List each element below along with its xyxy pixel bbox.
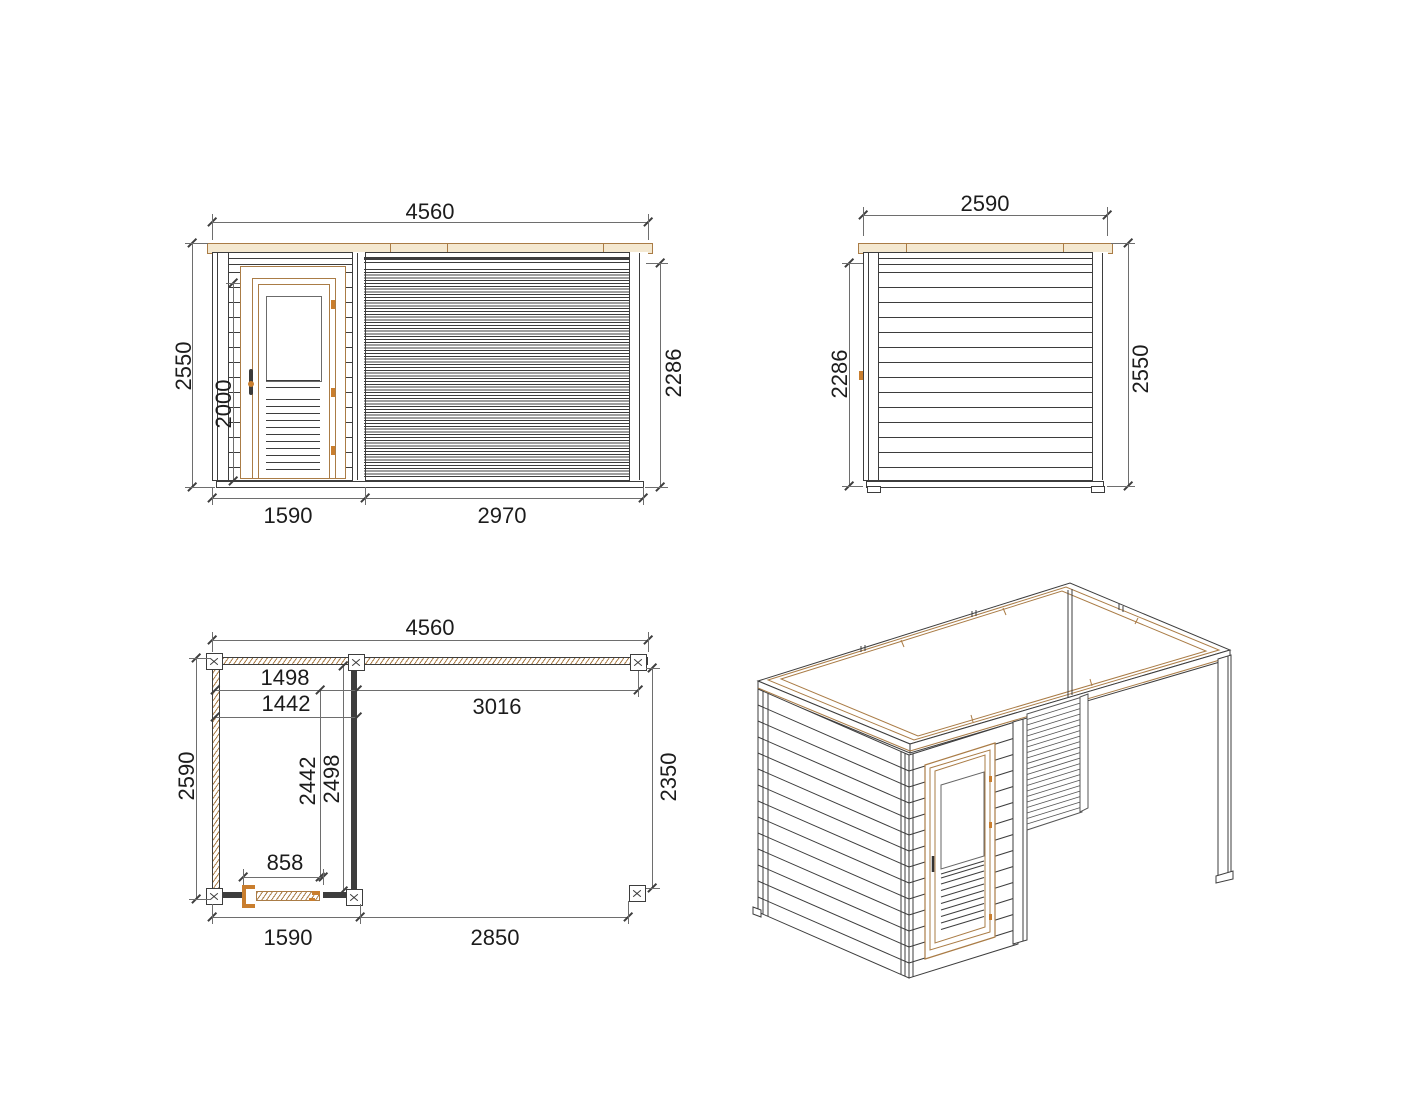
side-siding bbox=[878, 258, 1092, 479]
door-hinge bbox=[331, 300, 335, 309]
isometric-view bbox=[730, 555, 1260, 1005]
extension-line bbox=[842, 263, 863, 264]
door-latch bbox=[312, 891, 320, 895]
cabin-right-wall bbox=[351, 665, 357, 897]
post-back-right bbox=[630, 654, 647, 671]
extension-line bbox=[643, 487, 644, 505]
roof-joint bbox=[390, 244, 391, 252]
extension-line bbox=[648, 632, 649, 652]
dim-label-depth: 2590 bbox=[920, 191, 1050, 217]
dim-label-canopy-width: 2850 bbox=[430, 925, 560, 951]
extension-line bbox=[185, 487, 215, 488]
divider-line bbox=[357, 253, 358, 480]
extension-line bbox=[645, 487, 668, 488]
roof-joint bbox=[1063, 244, 1064, 252]
dim-label-door-opening: 858 bbox=[220, 850, 350, 876]
dimension-line bbox=[652, 668, 653, 888]
corner-board-line bbox=[868, 253, 869, 480]
dim-label-cabin-width: 1590 bbox=[223, 925, 353, 951]
dim-label-overall-width: 4560 bbox=[365, 615, 495, 641]
dim-label-canopy-span: 3016 bbox=[432, 694, 562, 720]
dimension-line bbox=[212, 498, 643, 499]
door-latch bbox=[309, 898, 315, 901]
door-hinge-bracket bbox=[242, 885, 255, 889]
extension-line bbox=[863, 207, 864, 236]
extension-line bbox=[185, 243, 208, 244]
foot-left bbox=[867, 486, 881, 493]
dim-label-louver-wall-width: 2970 bbox=[437, 503, 567, 529]
dim-label-cabin-inner-depth: 2442 bbox=[295, 716, 321, 846]
dimension-line bbox=[212, 917, 628, 918]
door-louvers bbox=[266, 393, 320, 471]
louver-top-line bbox=[364, 262, 629, 263]
extension-line bbox=[360, 904, 361, 924]
left-wall bbox=[212, 657, 220, 899]
dim-label-door-height: 2000 bbox=[211, 339, 237, 469]
corner-board-right bbox=[1092, 252, 1108, 481]
door-handle-knob bbox=[248, 381, 254, 387]
extension-line bbox=[646, 668, 660, 669]
door-hinge bbox=[331, 446, 335, 455]
extension-line bbox=[1107, 486, 1135, 487]
extension-line bbox=[365, 487, 366, 505]
extension-line bbox=[646, 263, 668, 264]
roof-joint bbox=[906, 244, 907, 252]
extension-line bbox=[212, 487, 213, 505]
door-rail bbox=[266, 380, 320, 388]
dim-label-overall-depth: 2590 bbox=[174, 711, 200, 841]
dim-label-canopy-depth: 2350 bbox=[656, 712, 682, 842]
post-front-right bbox=[629, 885, 646, 902]
extension-line bbox=[1107, 207, 1108, 236]
louver-wall bbox=[364, 269, 629, 479]
extension-line bbox=[189, 899, 210, 900]
door-hinge bbox=[331, 388, 335, 397]
dim-label-overall-height: 2550 bbox=[1128, 304, 1154, 434]
corner-board-line bbox=[1102, 253, 1103, 480]
door-hinge-bracket bbox=[242, 904, 255, 908]
extension-line bbox=[842, 486, 863, 487]
post-back-mid bbox=[348, 654, 365, 671]
dim-label-overall-height: 2550 bbox=[171, 301, 197, 431]
dim-label-wall-height: 2286 bbox=[827, 309, 853, 439]
extension-line bbox=[646, 888, 660, 889]
extension-line bbox=[1111, 243, 1135, 244]
dim-label-cabin-clear-depth: 2498 bbox=[319, 714, 345, 844]
dim-label-wall-height: 2286 bbox=[661, 308, 687, 438]
dim-label-cabin-inner-width: 1498 bbox=[220, 665, 350, 691]
extension-line bbox=[212, 632, 213, 652]
extension-line bbox=[226, 283, 240, 284]
roof-joint bbox=[603, 244, 604, 252]
drawing-canvas: 4560 2550 2000 2286 1590 2970 bbox=[0, 0, 1422, 1100]
base-beam bbox=[866, 481, 1104, 488]
extension-line bbox=[212, 904, 213, 924]
dim-label-overall-width: 4560 bbox=[365, 199, 495, 225]
base-beam bbox=[216, 481, 644, 488]
back-wall bbox=[212, 657, 648, 665]
corner-board-left bbox=[863, 252, 879, 481]
extension-line bbox=[189, 658, 210, 659]
door-window bbox=[266, 296, 322, 382]
post-front-left bbox=[206, 888, 223, 905]
extension-line bbox=[212, 214, 213, 240]
dim-label-cabin-width: 1590 bbox=[223, 503, 353, 529]
extension-line bbox=[648, 214, 649, 240]
dimension-line bbox=[243, 877, 323, 878]
iso-door bbox=[925, 743, 995, 959]
side-handle bbox=[859, 371, 863, 380]
louver-top-band bbox=[364, 257, 629, 260]
corner-board-line bbox=[639, 253, 640, 480]
foot-right bbox=[1091, 486, 1105, 493]
extension-line bbox=[628, 901, 629, 924]
roof-joint bbox=[447, 244, 448, 252]
extension-line bbox=[638, 671, 639, 697]
